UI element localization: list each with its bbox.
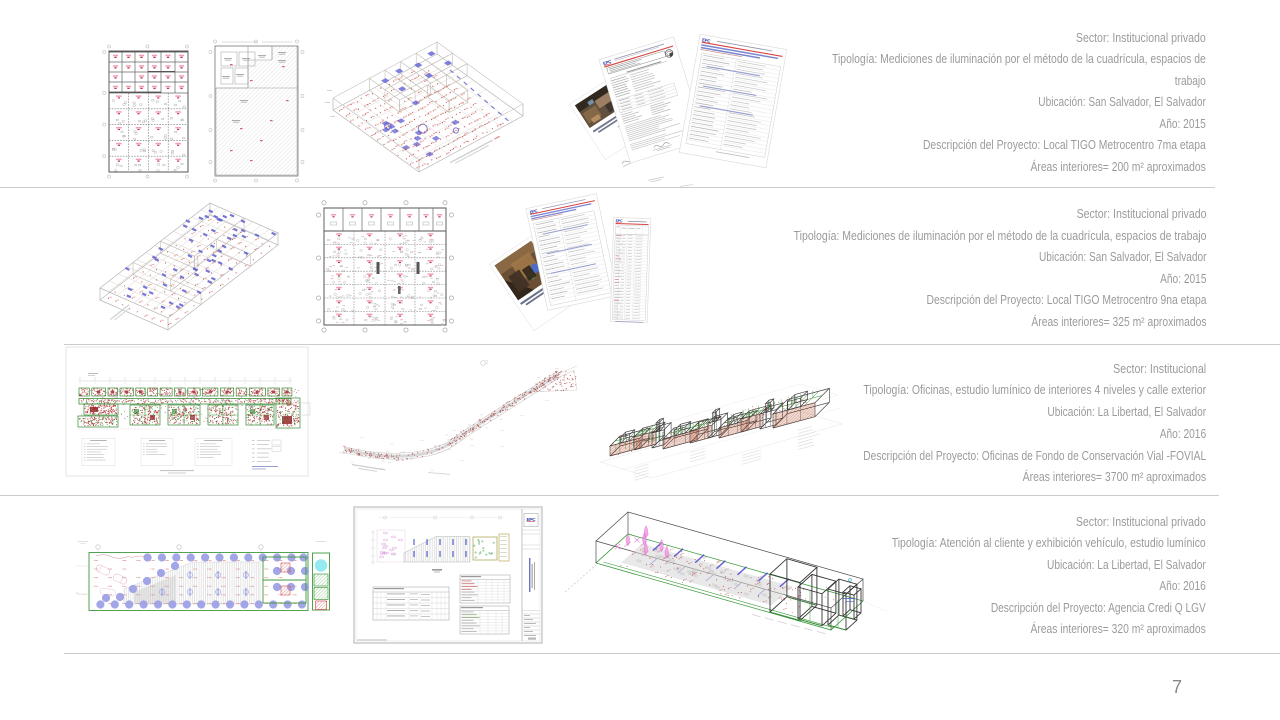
- svg-text:EPC: EPC: [527, 517, 537, 523]
